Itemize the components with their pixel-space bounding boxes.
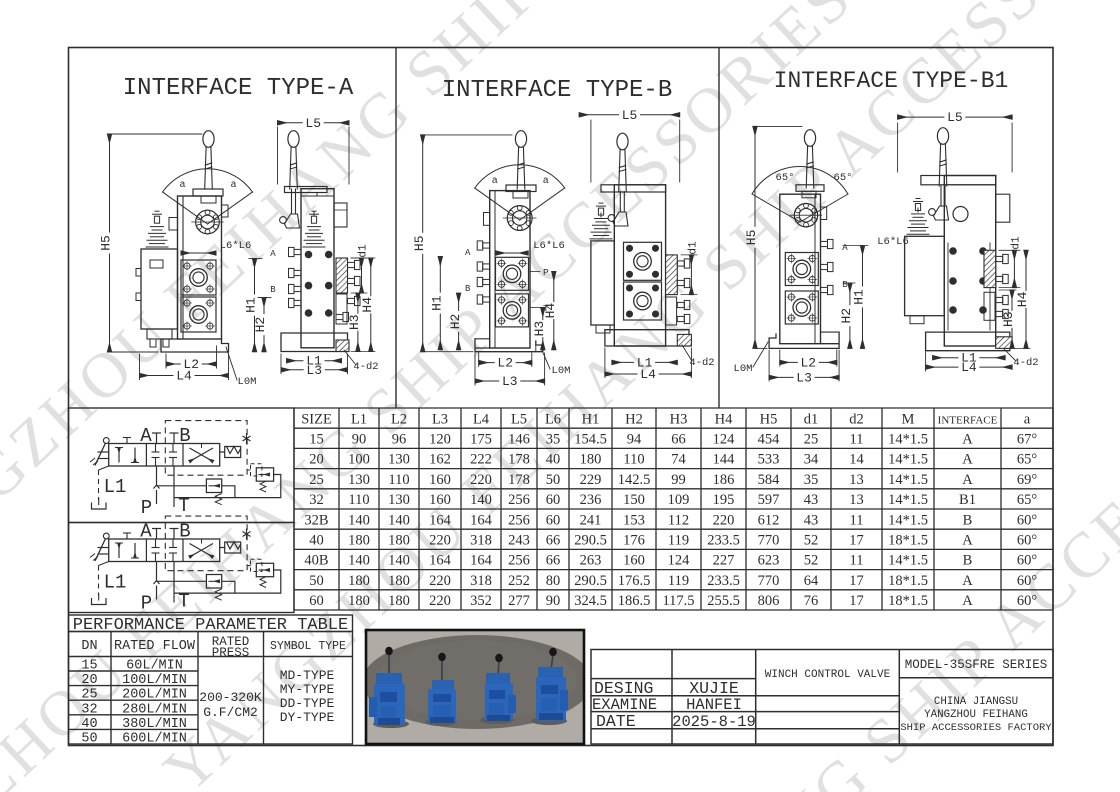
- svg-text:13: 13: [849, 492, 864, 508]
- svg-text:180: 180: [388, 593, 410, 609]
- svg-text:180: 180: [348, 573, 370, 589]
- svg-text:H3: H3: [670, 411, 688, 427]
- svg-text:227: 227: [713, 553, 735, 569]
- svg-text:120: 120: [429, 432, 451, 448]
- svg-text:SHIP ACCESSORIES FACTORY: SHIP ACCESSORIES FACTORY: [900, 722, 1052, 734]
- svg-text:L4: L4: [176, 369, 192, 384]
- svg-text:50: 50: [81, 732, 97, 747]
- svg-text:770: 770: [758, 573, 780, 589]
- svg-text:15: 15: [309, 432, 324, 448]
- svg-text:32: 32: [81, 702, 97, 717]
- svg-text:L3: L3: [306, 363, 322, 378]
- svg-text:69°: 69°: [1017, 472, 1038, 488]
- svg-text:H3: H3: [1001, 311, 1016, 327]
- svg-text:241: 241: [580, 512, 602, 528]
- svg-text:A: A: [140, 425, 152, 447]
- svg-text:256: 256: [508, 492, 530, 508]
- svg-text:20: 20: [81, 673, 97, 688]
- svg-text:L5: L5: [305, 116, 321, 131]
- svg-text:B: B: [465, 284, 471, 294]
- svg-text:110: 110: [623, 452, 644, 468]
- svg-text:176.5: 176.5: [618, 573, 651, 589]
- svg-text:180: 180: [348, 593, 370, 609]
- svg-text:222: 222: [470, 452, 492, 468]
- svg-text:18*1.5: 18*1.5: [888, 533, 928, 549]
- svg-text:277: 277: [508, 593, 530, 609]
- svg-text:11: 11: [850, 553, 864, 569]
- svg-text:50: 50: [309, 573, 324, 589]
- svg-text:74: 74: [671, 452, 686, 468]
- svg-text:60: 60: [546, 512, 561, 528]
- svg-text:220: 220: [429, 533, 451, 549]
- svg-text:RATED FLOW: RATED FLOW: [114, 639, 196, 654]
- svg-text:DY-TYPE: DY-TYPE: [280, 710, 335, 725]
- svg-text:H3: H3: [347, 314, 362, 330]
- svg-text:L2: L2: [497, 356, 513, 371]
- svg-text:HANFEI: HANFEI: [686, 696, 742, 714]
- svg-text:DATE: DATE: [596, 712, 636, 731]
- svg-text:233.5: 233.5: [707, 573, 740, 589]
- svg-text:186: 186: [713, 472, 735, 488]
- svg-text:L4: L4: [961, 360, 977, 375]
- svg-text:18*1.5: 18*1.5: [888, 573, 928, 589]
- svg-text:584: 584: [758, 472, 781, 488]
- svg-text:a: a: [230, 180, 236, 191]
- svg-text:18*1.5: 18*1.5: [888, 593, 928, 609]
- svg-text:178: 178: [508, 472, 530, 488]
- svg-text:164: 164: [470, 553, 493, 569]
- svg-text:4-d2: 4-d2: [353, 361, 378, 373]
- svg-text:L5: L5: [622, 108, 638, 123]
- svg-text:233.5: 233.5: [707, 533, 740, 549]
- svg-text:60°: 60°: [1017, 573, 1038, 589]
- svg-text:L6*L6: L6*L6: [220, 240, 252, 252]
- svg-text:153: 153: [623, 512, 645, 528]
- svg-text:806: 806: [758, 593, 780, 609]
- svg-text:164: 164: [470, 512, 493, 528]
- svg-text:32B: 32B: [304, 512, 328, 528]
- svg-text:162: 162: [429, 452, 451, 468]
- svg-text:80: 80: [546, 573, 561, 589]
- svg-text:352: 352: [470, 593, 492, 609]
- svg-text:144: 144: [713, 452, 736, 468]
- svg-text:L0M: L0M: [734, 363, 753, 375]
- svg-text:A: A: [270, 249, 276, 259]
- svg-text:140: 140: [388, 512, 410, 528]
- svg-text:64: 64: [804, 573, 819, 589]
- svg-text:180: 180: [388, 533, 410, 549]
- svg-text:35: 35: [546, 432, 561, 448]
- svg-text:A: A: [842, 243, 848, 253]
- svg-text:G.F/CM2: G.F/CM2: [203, 705, 258, 720]
- svg-text:130: 130: [348, 472, 370, 488]
- svg-text:P: P: [543, 267, 549, 278]
- svg-text:L3: L3: [432, 411, 448, 427]
- svg-text:B: B: [179, 425, 190, 447]
- svg-text:B: B: [842, 280, 848, 290]
- svg-text:109: 109: [668, 492, 690, 508]
- svg-text:140: 140: [388, 553, 410, 569]
- svg-text:H4: H4: [1015, 291, 1030, 307]
- svg-text:60°: 60°: [1017, 533, 1038, 549]
- svg-text:35: 35: [804, 472, 819, 488]
- svg-text:612: 612: [758, 512, 780, 528]
- svg-text:40: 40: [309, 533, 324, 549]
- svg-text:L3: L3: [796, 370, 812, 385]
- svg-text:25: 25: [81, 688, 97, 703]
- svg-text:B: B: [270, 285, 276, 295]
- svg-text:B: B: [963, 553, 973, 569]
- svg-text:43: 43: [804, 492, 819, 508]
- svg-text:110: 110: [348, 492, 369, 508]
- svg-text:L6: L6: [545, 411, 561, 427]
- svg-text:17: 17: [849, 533, 864, 549]
- svg-text:T: T: [178, 495, 189, 517]
- svg-text:140: 140: [470, 492, 492, 508]
- svg-text:MODEL-35SFRE SERIES: MODEL-35SFRE SERIES: [905, 658, 1048, 672]
- svg-text:B: B: [963, 512, 973, 528]
- svg-text:A: A: [962, 452, 973, 468]
- svg-text:14: 14: [849, 452, 864, 468]
- svg-text:M: M: [902, 411, 915, 427]
- svg-text:43: 43: [804, 512, 819, 528]
- svg-text:99: 99: [671, 472, 686, 488]
- svg-text:L1: L1: [351, 411, 367, 427]
- svg-text:L3: L3: [502, 374, 518, 389]
- svg-text:220: 220: [429, 593, 451, 609]
- svg-text:H5: H5: [99, 235, 114, 251]
- svg-text:INTERFACE TYPE-B1: INTERFACE TYPE-B1: [774, 68, 1009, 94]
- svg-text:INTERFACE TYPE-A: INTERFACE TYPE-A: [123, 75, 354, 102]
- svg-text:H1: H1: [582, 411, 600, 427]
- svg-text:100L/MIN: 100L/MIN: [122, 673, 187, 688]
- svg-text:175: 175: [470, 432, 492, 448]
- svg-text:119: 119: [668, 533, 689, 549]
- svg-text:a: a: [543, 176, 549, 187]
- svg-text:2025-8-19: 2025-8-19: [672, 713, 756, 731]
- svg-text:MY-TYPE: MY-TYPE: [280, 682, 335, 697]
- svg-text:20: 20: [309, 452, 324, 468]
- svg-text:INTERFACE TYPE-B: INTERFACE TYPE-B: [442, 77, 672, 104]
- svg-text:60: 60: [546, 492, 561, 508]
- svg-text:L5: L5: [947, 110, 963, 125]
- svg-text:H2: H2: [839, 308, 854, 324]
- svg-text:YANGZHOU FEIHANG: YANGZHOU FEIHANG: [924, 709, 1028, 721]
- svg-text:96: 96: [392, 432, 407, 448]
- svg-text:65°: 65°: [1017, 452, 1038, 468]
- svg-text:14*1.5: 14*1.5: [888, 553, 928, 569]
- svg-text:25: 25: [309, 472, 324, 488]
- svg-text:60°: 60°: [1017, 512, 1038, 528]
- svg-text:H2: H2: [448, 314, 463, 330]
- svg-text:290.5: 290.5: [574, 573, 607, 589]
- svg-text:A: A: [962, 573, 973, 589]
- svg-text:124: 124: [713, 432, 736, 448]
- svg-text:L2: L2: [800, 355, 816, 370]
- svg-text:DD-TYPE: DD-TYPE: [280, 696, 335, 711]
- svg-text:WINCH CONTROL VALVE: WINCH CONTROL VALVE: [765, 669, 891, 681]
- svg-text:d2: d2: [849, 411, 864, 427]
- svg-text:600L/MIN: 600L/MIN: [122, 732, 187, 747]
- svg-text:180: 180: [388, 573, 410, 589]
- svg-text:66: 66: [671, 432, 686, 448]
- svg-text:76: 76: [804, 593, 819, 609]
- svg-text:180: 180: [580, 452, 602, 468]
- svg-text:SYMBOL TYPE: SYMBOL TYPE: [270, 640, 346, 653]
- svg-text:112: 112: [668, 512, 689, 528]
- svg-text:L0M: L0M: [552, 365, 571, 377]
- svg-text:290.5: 290.5: [574, 533, 607, 549]
- svg-text:INTERFACE: INTERFACE: [938, 414, 998, 426]
- svg-text:H4: H4: [543, 303, 558, 319]
- svg-text:4-d2: 4-d2: [1013, 357, 1038, 369]
- svg-text:H3: H3: [532, 321, 547, 337]
- svg-text:94: 94: [627, 432, 642, 448]
- svg-text:H4: H4: [715, 411, 733, 427]
- svg-text:SIZE: SIZE: [301, 411, 332, 427]
- svg-text:17: 17: [849, 593, 864, 609]
- svg-text:220: 220: [470, 472, 492, 488]
- svg-text:236: 236: [580, 492, 602, 508]
- svg-text:14*1.5: 14*1.5: [888, 452, 928, 468]
- svg-text:a: a: [1024, 411, 1031, 427]
- svg-text:H5: H5: [744, 230, 759, 246]
- svg-text:176: 176: [623, 533, 645, 549]
- svg-text:130: 130: [388, 452, 410, 468]
- svg-text:229: 229: [580, 472, 602, 488]
- svg-text:52: 52: [804, 553, 819, 569]
- svg-text:186.5: 186.5: [618, 593, 651, 609]
- svg-text:130: 130: [388, 492, 410, 508]
- svg-text:H5: H5: [412, 235, 427, 251]
- svg-text:65°: 65°: [834, 172, 853, 184]
- svg-text:66: 66: [546, 553, 561, 569]
- svg-text:65°: 65°: [1017, 492, 1038, 508]
- svg-text:MD-TYPE: MD-TYPE: [280, 668, 335, 683]
- svg-text:150: 150: [623, 492, 645, 508]
- svg-text:25: 25: [804, 432, 819, 448]
- svg-text:d1: d1: [804, 411, 819, 427]
- svg-text:CHINA JIANGSU: CHINA JIANGSU: [934, 696, 1018, 708]
- svg-text:142.5: 142.5: [618, 472, 651, 488]
- svg-text:256: 256: [508, 512, 530, 528]
- svg-text:256: 256: [508, 553, 530, 569]
- svg-text:H1: H1: [852, 289, 867, 305]
- svg-text:d1: d1: [1011, 236, 1023, 250]
- svg-text:195: 195: [713, 492, 735, 508]
- svg-text:255.5: 255.5: [707, 593, 740, 609]
- svg-text:d1: d1: [358, 244, 370, 258]
- svg-text:324.5: 324.5: [574, 593, 607, 609]
- svg-text:597: 597: [758, 492, 780, 508]
- svg-text:11: 11: [850, 432, 864, 448]
- svg-text:L6*L6: L6*L6: [533, 240, 565, 252]
- svg-text:140: 140: [348, 553, 370, 569]
- svg-text:140: 140: [348, 512, 370, 528]
- svg-text:15: 15: [81, 659, 97, 674]
- svg-text:L4: L4: [640, 367, 656, 382]
- svg-text:a: a: [179, 180, 185, 191]
- svg-text:160: 160: [623, 553, 645, 569]
- svg-text:318: 318: [470, 533, 492, 549]
- svg-text:90: 90: [546, 593, 561, 609]
- svg-text:119: 119: [668, 573, 689, 589]
- svg-text:DN: DN: [81, 639, 97, 654]
- svg-text:A: A: [962, 533, 973, 549]
- svg-text:L5: L5: [511, 411, 527, 427]
- svg-text:263: 263: [580, 553, 602, 569]
- svg-text:100: 100: [348, 452, 370, 468]
- svg-text:40: 40: [546, 452, 561, 468]
- svg-text:L0M: L0M: [238, 376, 257, 388]
- svg-text:66: 66: [546, 533, 561, 549]
- svg-text:PRESS: PRESS: [212, 646, 250, 660]
- svg-text:14*1.5: 14*1.5: [888, 432, 928, 448]
- svg-text:H2: H2: [625, 411, 643, 427]
- svg-text:H2: H2: [253, 317, 268, 333]
- svg-text:11: 11: [850, 512, 864, 528]
- svg-text:220: 220: [429, 573, 451, 589]
- svg-text:50: 50: [546, 472, 561, 488]
- svg-text:H4: H4: [360, 297, 375, 313]
- svg-text:200-320K: 200-320K: [199, 690, 262, 705]
- svg-text:318: 318: [470, 573, 492, 589]
- svg-text:252: 252: [508, 573, 530, 589]
- svg-text:34: 34: [804, 452, 819, 468]
- svg-text:A: A: [962, 593, 973, 609]
- svg-text:P: P: [141, 497, 152, 519]
- svg-text:243: 243: [508, 533, 530, 549]
- svg-text:60: 60: [309, 593, 324, 609]
- svg-text:4-d2: 4-d2: [689, 357, 714, 369]
- svg-text:220: 220: [713, 512, 735, 528]
- svg-text:117.5: 117.5: [662, 593, 694, 609]
- svg-text:154.5: 154.5: [574, 432, 607, 448]
- svg-text:67°: 67°: [1017, 432, 1038, 448]
- svg-text:200L/MIN: 200L/MIN: [122, 688, 187, 703]
- svg-text:L2: L2: [391, 411, 407, 427]
- svg-text:533: 533: [758, 452, 780, 468]
- svg-text:164: 164: [429, 512, 452, 528]
- svg-text:40B: 40B: [304, 553, 328, 569]
- svg-text:164: 164: [429, 553, 452, 569]
- svg-text:60°: 60°: [1017, 553, 1038, 569]
- svg-text:60L/MIN: 60L/MIN: [126, 659, 183, 674]
- svg-text:a: a: [492, 176, 498, 187]
- svg-text:14*1.5: 14*1.5: [888, 512, 928, 528]
- svg-text:178: 178: [508, 452, 530, 468]
- svg-text:90: 90: [352, 432, 367, 448]
- svg-text:623: 623: [758, 553, 780, 569]
- svg-text:d1: d1: [688, 241, 700, 255]
- svg-text:A: A: [465, 248, 471, 258]
- svg-text:65°: 65°: [776, 172, 795, 184]
- svg-text:A: A: [962, 432, 973, 448]
- svg-text:17: 17: [849, 573, 864, 589]
- svg-text:B1: B1: [959, 492, 976, 508]
- svg-text:13: 13: [849, 472, 864, 488]
- svg-text:454: 454: [758, 432, 781, 448]
- svg-text:52: 52: [804, 533, 819, 549]
- svg-text:14*1.5: 14*1.5: [888, 472, 928, 488]
- svg-text:280L/MIN: 280L/MIN: [122, 702, 187, 717]
- svg-text:110: 110: [388, 472, 409, 488]
- svg-text:H1: H1: [430, 295, 445, 311]
- svg-text:14*1.5: 14*1.5: [888, 492, 928, 508]
- svg-text:L4: L4: [473, 411, 490, 427]
- svg-text:A: A: [962, 472, 973, 488]
- svg-text:40: 40: [81, 717, 97, 732]
- svg-text:32: 32: [309, 492, 324, 508]
- svg-text:160: 160: [429, 472, 451, 488]
- svg-text:H5: H5: [760, 411, 778, 427]
- svg-text:180: 180: [348, 533, 370, 549]
- svg-text:160: 160: [429, 492, 451, 508]
- svg-text:770: 770: [758, 533, 780, 549]
- svg-text:H1: H1: [244, 297, 259, 313]
- svg-text:146: 146: [508, 432, 530, 448]
- svg-text:124: 124: [668, 553, 691, 569]
- svg-text:PERFORMANCE PARAMETER TABLE: PERFORMANCE PARAMETER TABLE: [73, 616, 348, 635]
- svg-text:60°: 60°: [1017, 593, 1038, 609]
- svg-text:L1: L1: [104, 476, 127, 498]
- svg-text:380L/MIN: 380L/MIN: [122, 717, 187, 732]
